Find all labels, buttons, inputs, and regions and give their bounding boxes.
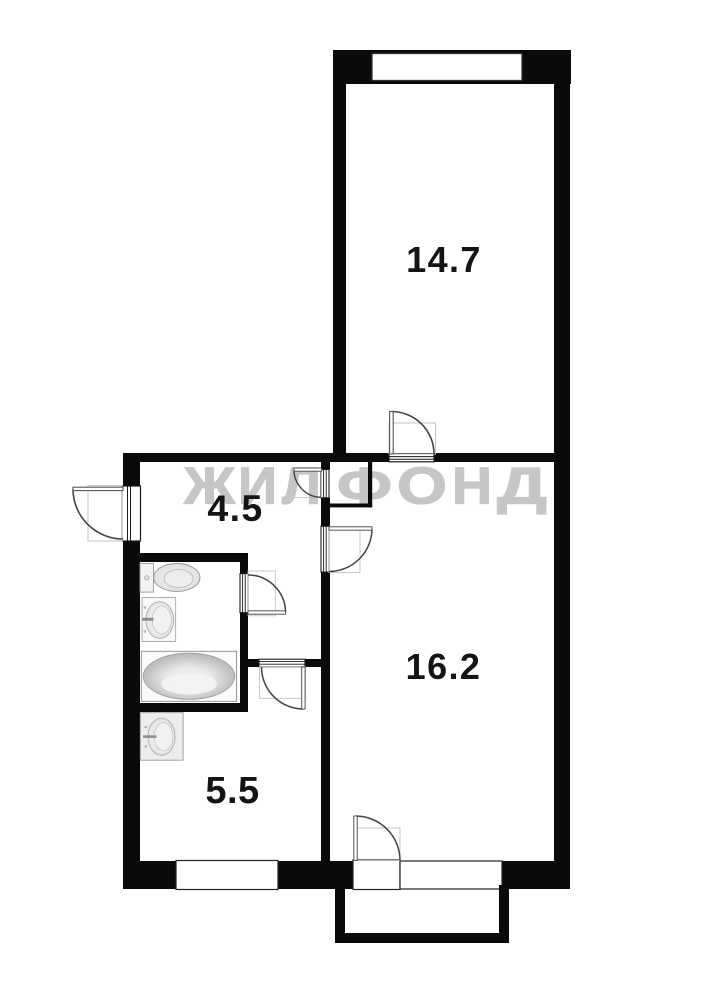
svg-text:4.5: 4.5 [207, 487, 263, 529]
svg-text:5.5: 5.5 [205, 770, 259, 812]
svg-text:Н: Н [452, 458, 492, 516]
svg-text:О: О [397, 458, 447, 516]
svg-text:Д: Д [497, 458, 547, 516]
svg-text:14.7: 14.7 [406, 239, 482, 280]
svg-text:Л: Л [282, 458, 321, 516]
svg-text:16.2: 16.2 [406, 646, 482, 687]
